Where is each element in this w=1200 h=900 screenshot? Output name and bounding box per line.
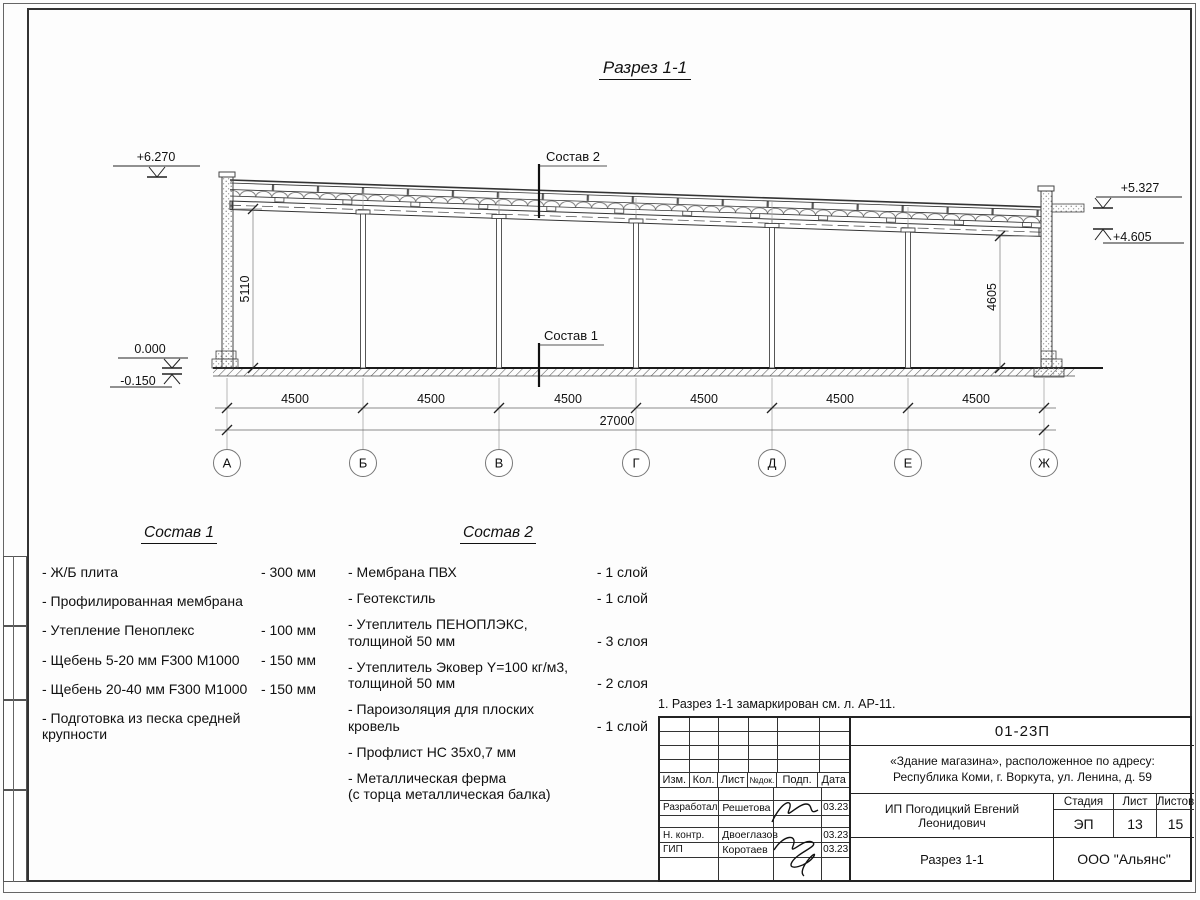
signature-row-gip: ГИП Коротаев 03.23 <box>660 843 849 858</box>
svg-text:-0.150: -0.150 <box>120 374 155 388</box>
list-item: - Утеплитель ПЕНОПЛЭКС, толщиной 50 мм -… <box>348 616 648 648</box>
signature-cell <box>774 843 823 857</box>
elevation-mark-right-bottom: +4.605 <box>1093 229 1184 244</box>
list-item: - Профлист НС 35х0,7 мм <box>348 744 648 760</box>
columns <box>356 210 915 368</box>
svg-text:0.000: 0.000 <box>134 342 165 356</box>
list-item: - Подготовка из песка средней крупности <box>42 710 316 742</box>
svg-text:Е: Е <box>904 456 913 471</box>
list-item: - Ж/Б плита - 300 мм <box>42 564 316 580</box>
svg-text:4500: 4500 <box>826 392 854 406</box>
sheet-title: Разрез 1-1 <box>851 838 1054 880</box>
svg-text:Ж: Ж <box>1038 456 1050 471</box>
list-item: - Пароизоляция для плоских кровель - 1 с… <box>348 701 648 733</box>
title-block: Изм. Кол. Лист №док. Подп. Дата Разработ… <box>658 716 1192 882</box>
signature-row-empty <box>660 788 849 801</box>
list-item: - Утеплитель Эковер Y=100 кг/м3, толщино… <box>348 659 648 691</box>
sostav1-list: Состав 1 - Ж/Б плита - 300 мм - Профилир… <box>42 524 316 756</box>
vertical-dim-right: 4605 <box>985 231 1042 373</box>
title-block-main: 01-23П «Здание магазина», расположенное … <box>851 718 1194 880</box>
svg-text:+6.270: +6.270 <box>137 150 176 164</box>
list-item: - Профилированная мембрана <box>42 593 316 609</box>
signature-row-empty <box>660 816 849 829</box>
svg-text:+5.327: +5.327 <box>1121 181 1160 195</box>
callout-sostav1: Состав 1 <box>539 328 604 387</box>
axis-bubbles: А Б В Г Д Е Ж <box>214 450 1058 477</box>
svg-text:4605: 4605 <box>985 283 999 311</box>
total-dimension: 27000 <box>600 414 635 428</box>
svg-text:В: В <box>495 456 504 471</box>
revision-header-row: Изм. Кол. Лист №док. Подп. Дата <box>660 773 849 789</box>
sostav2-list: Состав 2 - Мембрана ПВХ - 1 слой - Геоте… <box>348 524 648 813</box>
drawing-sheet: Разрез 1-1 <box>0 0 1200 900</box>
right-wall <box>1034 186 1084 377</box>
sostav1-title: Состав 1 <box>42 524 316 542</box>
svg-text:4500: 4500 <box>962 392 990 406</box>
signature-row-empty <box>660 858 849 880</box>
list-item: - Щебень 5-20 мм F300 М1000 - 150 мм <box>42 652 316 668</box>
signature-cell <box>774 828 822 842</box>
stage-value: ЭП <box>1054 810 1114 837</box>
drawing-note: 1. Разрез 1-1 замаркирован см. л. АР-11. <box>658 697 895 711</box>
list-item: - Геотекстиль - 1 слой <box>348 590 648 606</box>
svg-text:Состав 2: Состав 2 <box>546 149 600 164</box>
svg-text:+4.605: +4.605 <box>1113 230 1152 244</box>
svg-text:Д: Д <box>768 456 777 471</box>
elevation-mark-zero: 0.000 <box>118 342 188 368</box>
sheet-count: 15 <box>1157 810 1194 837</box>
svg-text:4500: 4500 <box>417 392 445 406</box>
list-item: - Мембрана ПВХ - 1 слой <box>348 564 648 580</box>
sostav2-title: Состав 2 <box>348 524 648 542</box>
list-item: - Щебень 20-40 мм F300 М1000 - 150 мм <box>42 681 316 697</box>
signature-row-ncontr: Н. контр. Двоеглазов 03.23 <box>660 828 849 843</box>
floor-slab <box>213 368 1103 376</box>
svg-text:5110: 5110 <box>238 276 252 303</box>
elevation-mark-top-left: +6.270 <box>113 150 200 177</box>
object-address: «Здание магазина», расположенное по адре… <box>851 746 1194 794</box>
svg-text:4500: 4500 <box>690 392 718 406</box>
sheet-number: 13 <box>1114 810 1157 837</box>
organization-name: ООО "Альянс" <box>1054 838 1194 880</box>
signature-cell <box>774 801 823 815</box>
svg-text:Состав 1: Состав 1 <box>544 328 598 343</box>
dimension-chain: 4500 4500 4500 4500 4500 4500 27000 <box>215 378 1056 450</box>
svg-text:4500: 4500 <box>281 392 309 406</box>
elevation-mark-right-top: +5.327 <box>1093 181 1182 208</box>
list-item: - Металлическая ферма (с торца металличе… <box>348 770 648 802</box>
revision-grid <box>660 718 849 773</box>
list-item: - Утепление Пеноплекс - 100 мм <box>42 622 316 638</box>
client-name: ИП Погодицкий Евгений Леонидович <box>851 794 1054 837</box>
document-number: 01-23П <box>851 718 1194 746</box>
title-block-revision-table: Изм. Кол. Лист №док. Подп. Дата Разработ… <box>660 718 851 880</box>
svg-text:Г: Г <box>632 456 639 471</box>
elevation-mark-below-zero: -0.150 <box>110 374 182 388</box>
vertical-dim-left: 5110 <box>234 204 262 373</box>
stage-sheet-table: Стадия Лист Листов ЭП 13 15 <box>1054 794 1194 837</box>
svg-text:А: А <box>223 456 232 471</box>
svg-text:Б: Б <box>359 456 368 471</box>
signature-row-developed: Разработал Решетова 03.23 <box>660 801 849 816</box>
svg-text:4500: 4500 <box>554 392 582 406</box>
